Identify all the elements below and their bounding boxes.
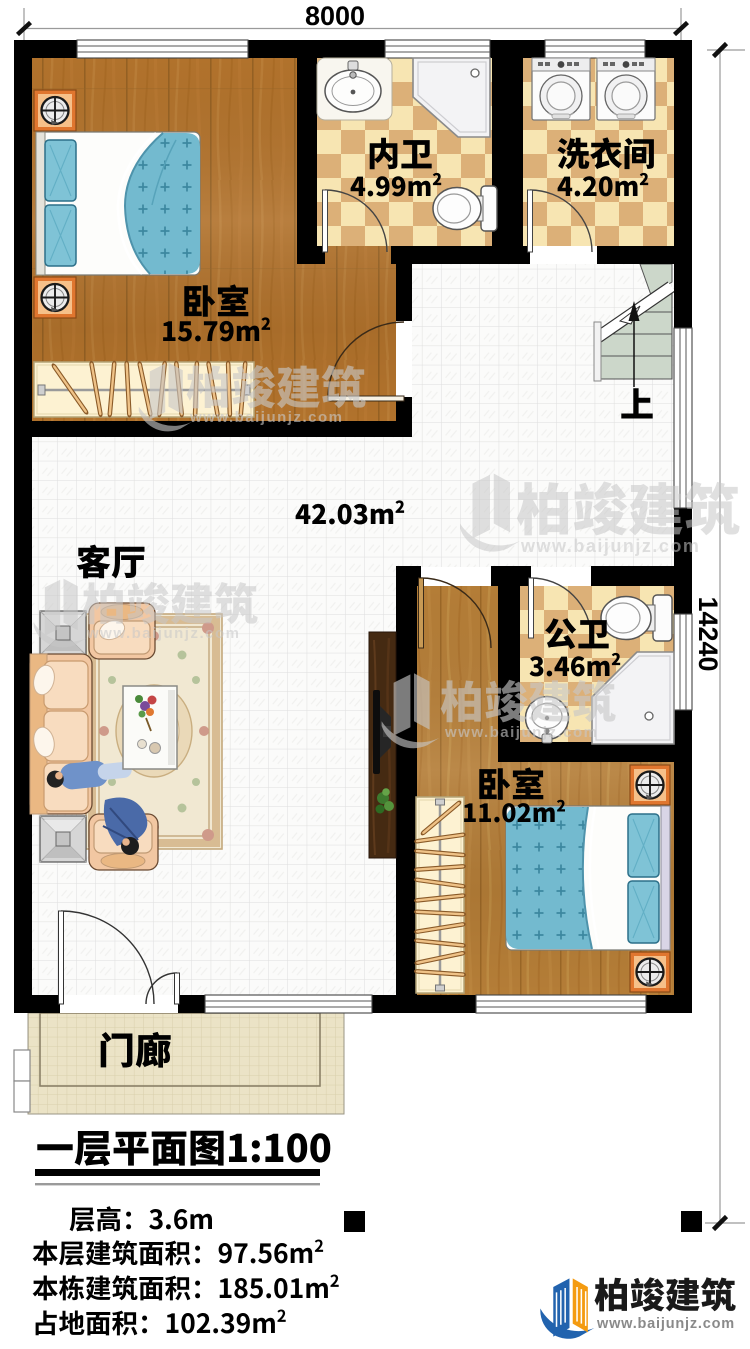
svg-text:www.baijunjz.com: www.baijunjz.com: [444, 724, 598, 741]
svg-text:8000: 8000: [305, 1, 365, 31]
svg-text:www.baijunjz.com: www.baijunjz.com: [86, 625, 240, 642]
svg-text:www.baijunjz.com: www.baijunjz.com: [596, 1316, 735, 1332]
svg-text:www.baijunjz.com: www.baijunjz.com: [189, 409, 343, 426]
svg-text:14240: 14240: [693, 596, 723, 671]
svg-text:www.baijunjz.com: www.baijunjz.com: [520, 536, 700, 556]
